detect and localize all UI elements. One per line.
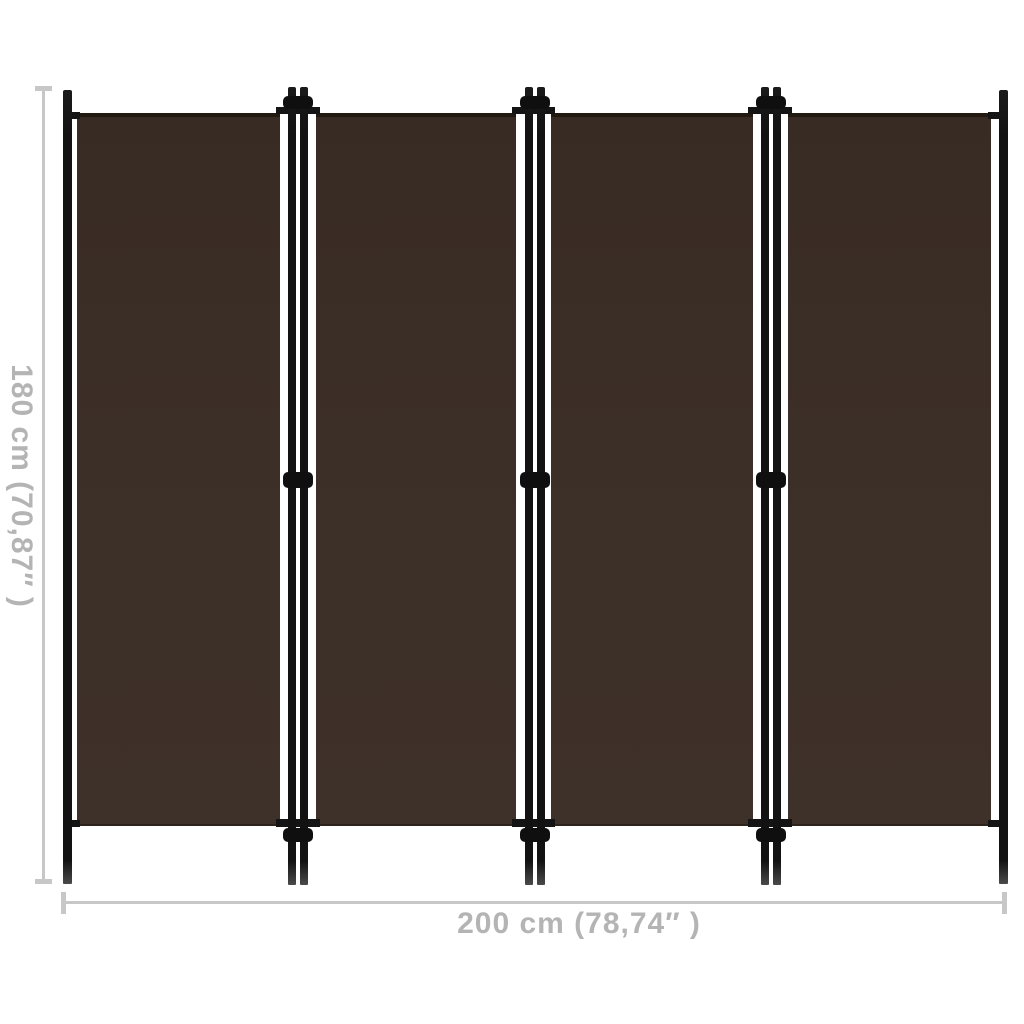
panel-mount-tab-bottom-hinge-2 xyxy=(512,819,555,827)
frame-pole-right xyxy=(999,90,1008,884)
hinge-1-bottom-connector xyxy=(283,828,313,842)
hinge-2-top-connector xyxy=(520,96,550,109)
panel-mount-tab-bottom-hinge-1 xyxy=(276,819,320,827)
width-dimension-line xyxy=(63,901,1005,904)
hinge-2-bottom-connector xyxy=(520,828,550,842)
height-dimension-line xyxy=(42,88,45,883)
height-dimension-cap-top xyxy=(35,86,52,91)
divider-panel-4 xyxy=(788,113,991,826)
divider-panel-1 xyxy=(77,113,280,826)
frame-pole-left xyxy=(63,90,72,884)
width-dimension-cap-left xyxy=(61,892,66,914)
height-dimension-label: 180 cm (70,87″ ) xyxy=(4,206,38,766)
hinge-1-top-connector xyxy=(283,96,313,109)
hinge-3-middle-connector xyxy=(756,472,786,488)
hinge-2-middle-connector xyxy=(520,472,550,488)
divider-panel-2 xyxy=(316,113,516,826)
hinge-1-middle-connector xyxy=(283,472,313,488)
width-dimension-cap-right xyxy=(1002,892,1007,914)
divider-panel-3 xyxy=(551,113,753,826)
hinge-3-bottom-connector xyxy=(756,828,786,842)
width-dimension-label: 200 cm (78,74″ ) xyxy=(379,907,779,941)
hinge-3-top-connector xyxy=(756,96,786,109)
height-dimension-cap-bottom xyxy=(35,879,52,884)
product-dimension-image: 180 cm (70,87″ ) 200 cm (78,74″ ) xyxy=(0,0,1024,1024)
panel-mount-tab-bottom-hinge-3 xyxy=(748,819,792,827)
